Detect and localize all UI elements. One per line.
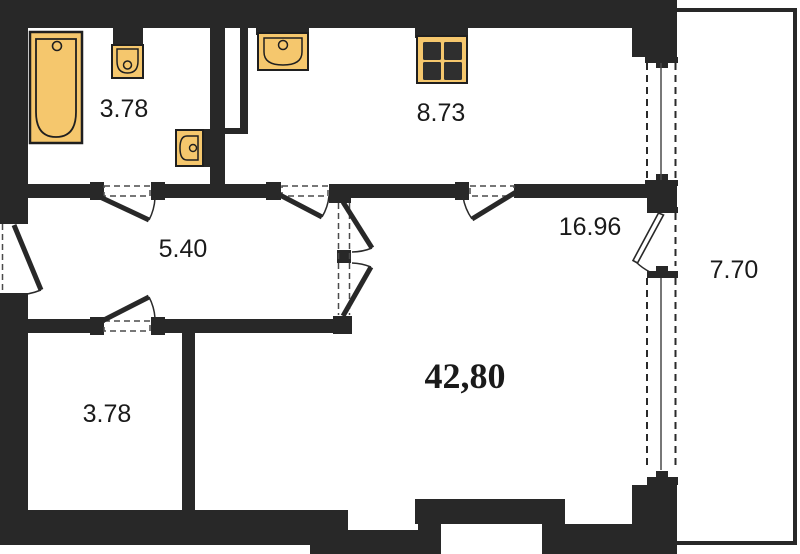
wall-duct-right [240, 28, 248, 133]
balcony-door [633, 213, 664, 272]
wall-bottom-f [542, 524, 632, 554]
bathroom-door-opening [104, 186, 150, 196]
stove-burner [423, 42, 441, 60]
toilet-drain [124, 61, 132, 69]
stove-burner [444, 42, 462, 60]
double-door-post-bottom [333, 316, 352, 334]
toilet-tank [113, 28, 143, 45]
bathroom-area-label: 3.78 [100, 95, 149, 123]
door-swing-arc [149, 297, 155, 318]
bathroom-door [100, 197, 155, 220]
door-openings [3, 186, 515, 331]
wall-bathroom-right [210, 28, 225, 198]
double-door-top-leaf [343, 202, 372, 252]
hand-sink-drain [190, 145, 197, 152]
double-door-post-top [329, 184, 351, 203]
door-swing-arc [352, 263, 371, 267]
window-sill [647, 271, 678, 278]
door-swing-arc [149, 198, 155, 220]
wall-storeroom-right [182, 333, 195, 512]
bathtub-basin [36, 39, 76, 137]
door-leaf [100, 297, 149, 322]
wall-bottom-d [415, 499, 565, 524]
door-leaf [343, 202, 372, 248]
door-post [514, 184, 527, 198]
wall-h1-b [165, 184, 266, 198]
door-post [151, 182, 165, 200]
bathtub-icon [30, 32, 82, 143]
kitchen-living-door [463, 192, 516, 219]
wall-bottom-a [0, 510, 310, 545]
balcony-wall-bottom [677, 541, 797, 545]
kitchen-sink-icon [256, 24, 309, 70]
storeroom-door [100, 297, 155, 322]
hallway-area-label: 5.40 [159, 235, 208, 263]
wall-h1-d [527, 184, 648, 198]
balcony-wall-top [677, 8, 797, 12]
door-post [266, 182, 281, 200]
wall-duct-bottom [225, 128, 248, 134]
wall-left-lower [0, 299, 28, 545]
fixtures [30, 24, 468, 167]
wall-h2-a [28, 319, 90, 333]
walls [0, 0, 797, 554]
wall-left-upper [0, 28, 28, 218]
wall-right-top-block [632, 28, 677, 57]
sill-nub [656, 174, 668, 180]
door-leaf [278, 194, 322, 217]
hand-sink-icon [176, 129, 211, 167]
wall-h2-b [165, 319, 333, 333]
window-sill [645, 180, 678, 186]
entrance-door [14, 225, 41, 295]
window-sill [645, 57, 678, 63]
door-post [151, 317, 165, 335]
balcony-area-label: 7.70 [710, 256, 759, 284]
double-door-bottom-leaf [343, 263, 371, 316]
kitchen-sink-drain [279, 41, 288, 50]
wall-top [0, 0, 677, 28]
kitchen-hall-door [278, 194, 329, 217]
wall-bottom-c [348, 530, 418, 554]
door-post [455, 182, 469, 200]
window-sill [647, 207, 678, 213]
door-leaf [100, 197, 149, 220]
door-leaf [343, 267, 371, 316]
window-sill [647, 477, 678, 485]
door-swing-arc [322, 196, 329, 217]
wall-h1-c [351, 184, 455, 198]
kitchen-hall-door-opening [282, 186, 328, 196]
door-leaf [633, 213, 664, 263]
sill-nub [656, 63, 668, 68]
door-swing-arc [352, 248, 372, 252]
kitchen-area-label: 8.73 [417, 99, 466, 127]
storeroom-area-label: 3.78 [83, 400, 132, 428]
stove-burner [423, 62, 441, 80]
floor-plan-drawing: 3.78 8.73 5.40 16.96 7.70 3.78 42,80 [0, 0, 800, 554]
wall-bottom-e [418, 524, 441, 554]
stove-burner [444, 62, 462, 80]
living-room-area-label: 16.96 [559, 213, 622, 241]
stove-icon [415, 26, 468, 83]
door-leaf [14, 225, 41, 290]
wall-h1-a [28, 184, 92, 198]
wall-bottom-b [310, 510, 348, 554]
door-swing-arc [463, 197, 472, 219]
entrance-jamb-top [0, 218, 28, 224]
storeroom-door-opening [104, 321, 150, 331]
floor-plan: 3.78 8.73 5.40 16.96 7.70 3.78 42,80 [0, 0, 800, 554]
balcony-wall-right [793, 8, 797, 545]
door-swing-arc [636, 262, 650, 272]
bathtub-drain [53, 42, 62, 51]
sill-nub [656, 471, 668, 477]
toilet-icon [112, 28, 143, 78]
total-area-label: 42,80 [425, 356, 506, 396]
sill-nub [656, 266, 668, 271]
wall-right-bottom-block [632, 485, 677, 554]
door-swing-arc [17, 290, 41, 295]
